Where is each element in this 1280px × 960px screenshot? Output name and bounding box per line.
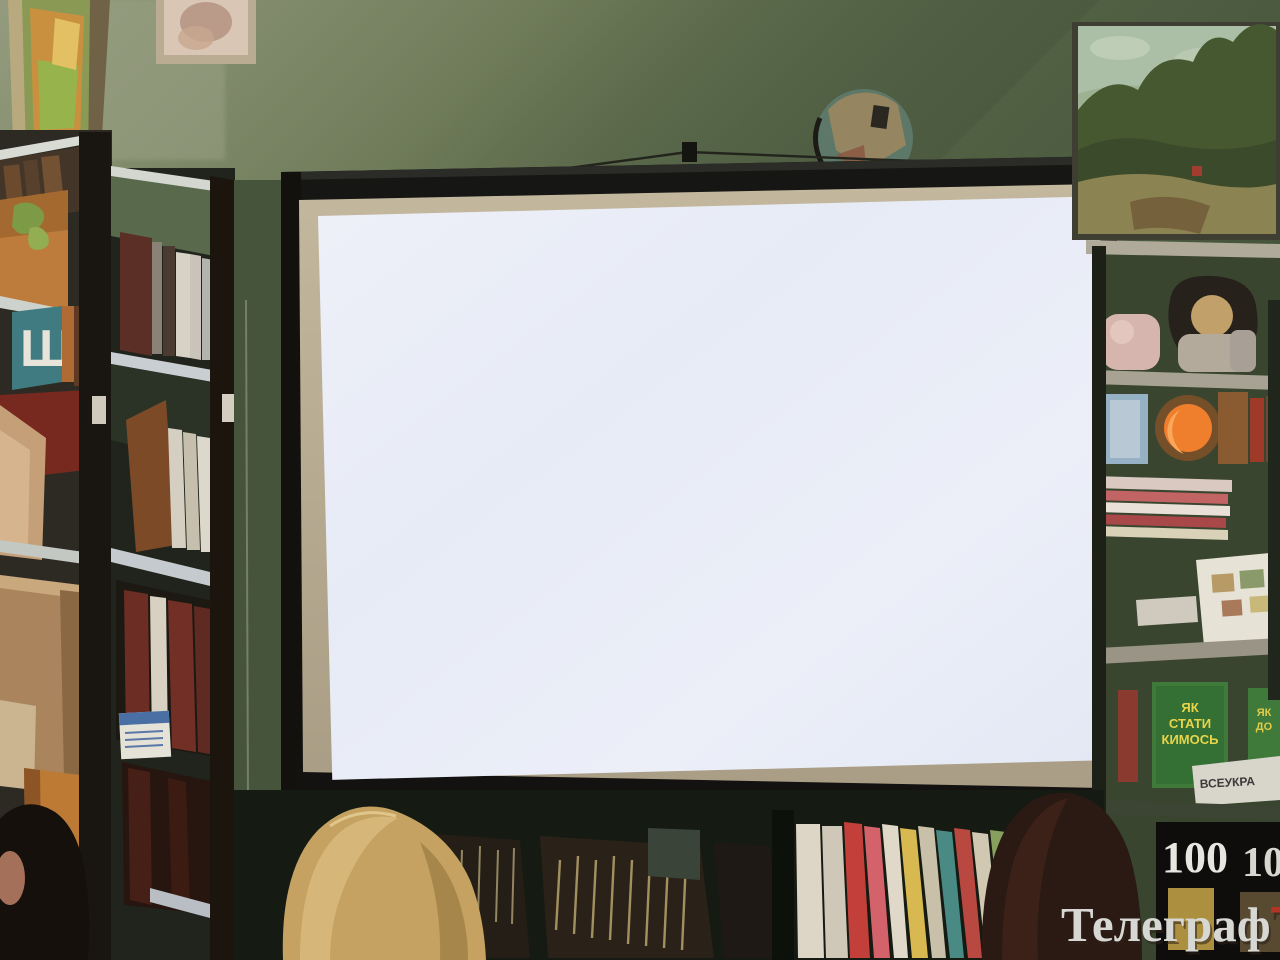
svg-text:ВСЕУКРА: ВСЕУКРА (1199, 774, 1255, 791)
svg-text:ТелеграфЪ: ТелеграфЪ (1061, 897, 1280, 952)
svg-text:ДО: ДО (1256, 721, 1273, 733)
svg-text:100: 100 (1162, 833, 1228, 882)
svg-text:КИМОСЬ: КИМОСЬ (1162, 732, 1219, 747)
svg-text:ЯК: ЯК (1257, 707, 1272, 719)
svg-text:ЯК: ЯК (1181, 700, 1198, 715)
svg-text:СТАТИ: СТАТИ (1169, 716, 1211, 731)
svg-text:10: 10 (1242, 840, 1280, 886)
